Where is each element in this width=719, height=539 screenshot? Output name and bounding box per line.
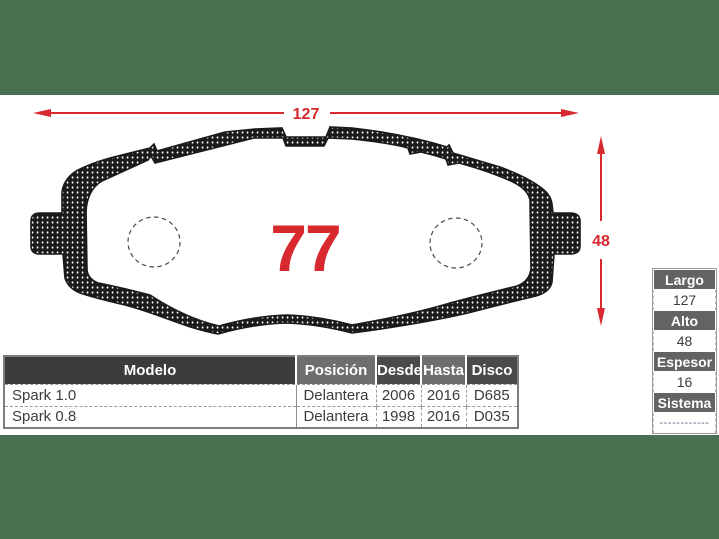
cell-disco: D035 [466, 406, 518, 428]
spec-value-espesor: 16 [653, 372, 716, 393]
brake-pad-diagram: 77 127 48 [0, 0, 719, 539]
cell-hasta: 2016 [421, 384, 466, 406]
arrow-up-icon [597, 136, 605, 154]
left-hole-circle [128, 217, 180, 267]
width-dimension-label: 127 [293, 106, 320, 123]
arrow-left-icon [33, 109, 51, 117]
arrow-right-icon [561, 109, 579, 117]
fitment-table: Modelo Posición Desde Hasta Disco Spark … [3, 355, 519, 429]
right-hole-circle [430, 218, 482, 268]
spec-panel: Largo 127 Alto 48 Espesor 16 Sistema ---… [652, 268, 717, 434]
table-row: Spark 1.0 Delantera 2006 2016 D685 [4, 384, 518, 406]
spec-value-largo: 127 [653, 290, 716, 311]
cell-modelo: Spark 1.0 [4, 384, 296, 406]
height-dimension: 48 [592, 136, 610, 326]
cell-desde: 1998 [376, 406, 421, 428]
spec-value-sistema: ------------ [653, 413, 716, 434]
header-hasta: Hasta [421, 356, 466, 384]
spec-label-alto: Alto [653, 310, 716, 331]
cell-desde: 2006 [376, 384, 421, 406]
cell-disco: D685 [466, 384, 518, 406]
spec-label-largo: Largo [653, 269, 716, 290]
product-image: 77 127 48 Modelo Posición Desde [0, 0, 719, 539]
cell-posicion: Delantera [296, 406, 376, 428]
cell-hasta: 2016 [421, 406, 466, 428]
header-desde: Desde [376, 356, 421, 384]
header-disco: Disco [466, 356, 518, 384]
spec-label-espesor: Espesor [653, 351, 716, 372]
table-row: Spark 0.8 Delantera 1998 2016 D035 [4, 406, 518, 428]
table-header-row: Modelo Posición Desde Hasta Disco [4, 356, 518, 384]
header-posicion: Posición [296, 356, 376, 384]
height-dimension-label: 48 [592, 233, 610, 250]
width-dimension: 127 [33, 106, 579, 123]
spec-label-sistema: Sistema [653, 392, 716, 413]
header-modelo: Modelo [4, 356, 296, 384]
cell-modelo: Spark 0.8 [4, 406, 296, 428]
part-number: 77 [270, 211, 339, 285]
spec-value-alto: 48 [653, 331, 716, 352]
arrow-down-icon [597, 308, 605, 326]
cell-posicion: Delantera [296, 384, 376, 406]
